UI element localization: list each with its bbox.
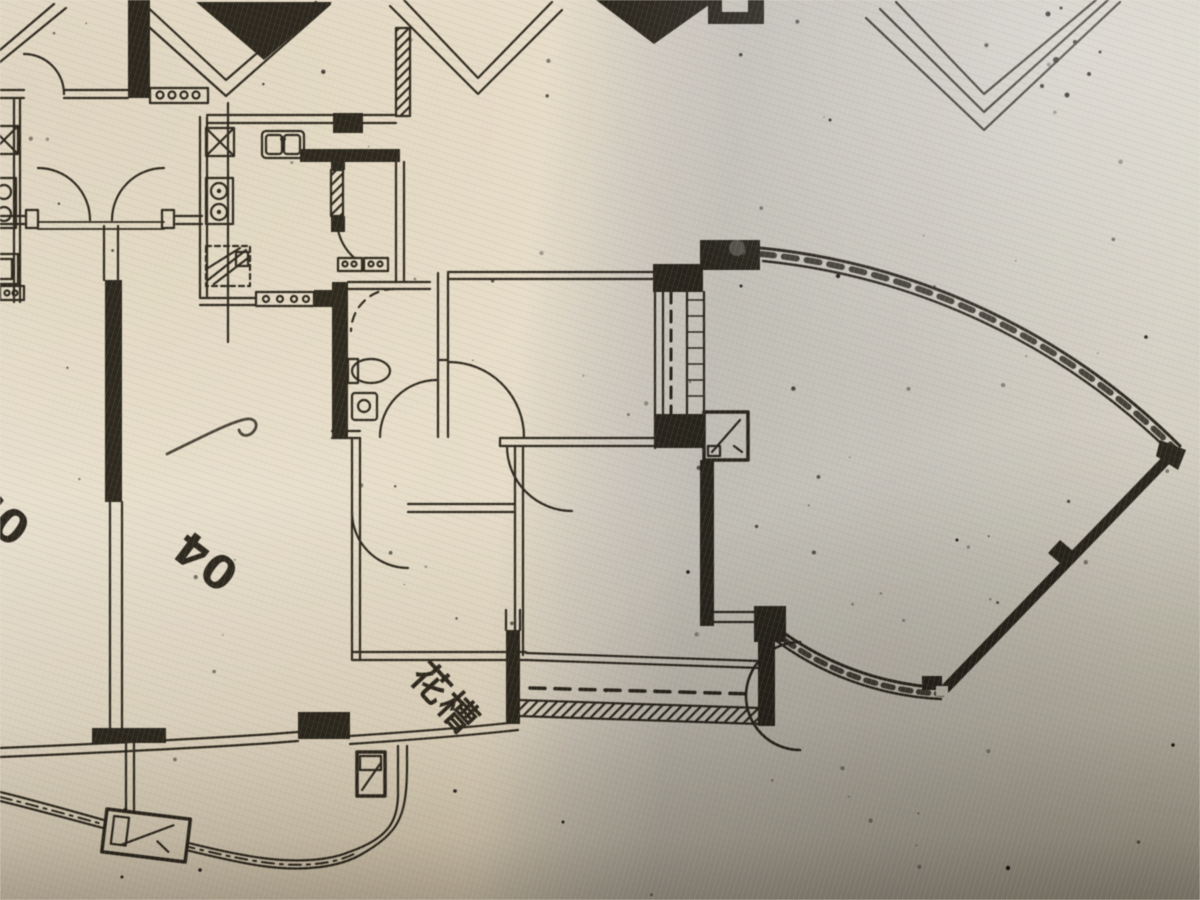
- floor-plan-photo: 03 04 花槽: [0, 0, 1200, 900]
- floor-plan: 03 04 花槽: [0, 0, 1200, 900]
- photo-shadow: [0, 0, 1200, 900]
